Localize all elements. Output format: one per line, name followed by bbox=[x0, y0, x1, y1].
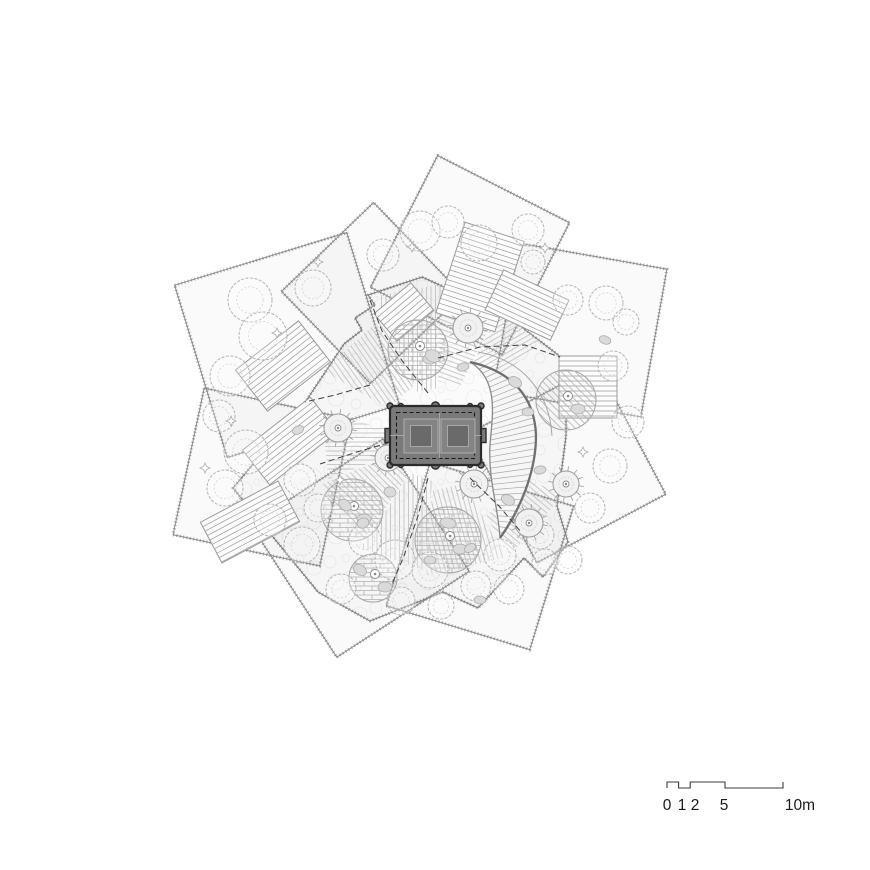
scale-label: 10m bbox=[785, 797, 815, 814]
tree-canopy bbox=[532, 549, 558, 575]
tree-canopy-outline bbox=[387, 587, 415, 615]
terrace-drain-dot bbox=[374, 573, 377, 576]
tree-canopy-outline bbox=[224, 430, 268, 474]
tree-canopy-outline bbox=[254, 504, 286, 536]
tree-canopy-outline bbox=[375, 540, 415, 580]
tree-canopy bbox=[304, 494, 332, 522]
tree-canopy bbox=[284, 527, 320, 563]
shrub-blob bbox=[424, 556, 436, 564]
tree-canopy-outline bbox=[494, 574, 524, 604]
tree-canopy-outline bbox=[553, 285, 583, 315]
scale-label: 5 bbox=[720, 797, 729, 814]
tree-canopy bbox=[239, 312, 287, 360]
tree-canopy bbox=[428, 593, 454, 619]
scale-label: 0 bbox=[663, 797, 672, 814]
tree-canopy bbox=[375, 540, 415, 580]
terrace-drain-dot bbox=[449, 535, 452, 538]
tree-canopy-outline bbox=[598, 351, 628, 381]
page: 012510m bbox=[0, 0, 870, 870]
terrace-shrub bbox=[571, 404, 585, 414]
tree-canopy bbox=[432, 206, 464, 238]
pavilion-roof-inner bbox=[448, 426, 469, 447]
tree-canopy-outline bbox=[326, 574, 356, 604]
tree-canopy-outline bbox=[284, 527, 320, 563]
shrub-blob bbox=[474, 596, 486, 604]
scale-bar: 012510m bbox=[663, 782, 815, 814]
shrub-blob bbox=[522, 408, 534, 416]
tree-canopy bbox=[224, 430, 268, 474]
tree-canopy-outline bbox=[349, 524, 381, 556]
tree-canopy bbox=[613, 309, 639, 335]
tree-canopy bbox=[461, 571, 491, 601]
tree-canopy bbox=[284, 464, 316, 496]
terrace-drain-dot bbox=[419, 345, 422, 348]
tree-canopy bbox=[461, 225, 497, 261]
tree-canopy-outline bbox=[613, 309, 639, 335]
terrace-drain-dot bbox=[353, 505, 356, 508]
tree-canopy bbox=[295, 270, 331, 306]
tree-canopy bbox=[349, 524, 381, 556]
tree-canopy-outline bbox=[239, 312, 287, 360]
planter-trunk-dot bbox=[565, 483, 567, 485]
tree-canopy-outline bbox=[484, 539, 516, 571]
terrace bbox=[536, 370, 596, 430]
tree-canopy-outline bbox=[512, 214, 544, 246]
tree-canopy-outline bbox=[532, 549, 558, 575]
planter-trunk-dot bbox=[528, 522, 530, 524]
tree-canopy-outline bbox=[612, 406, 644, 438]
tree-canopy-outline bbox=[432, 206, 464, 238]
planter-trunk-dot bbox=[387, 457, 389, 459]
tree-canopy bbox=[521, 250, 545, 274]
scale-bar-line bbox=[667, 782, 783, 788]
tree-canopy bbox=[367, 239, 399, 271]
pavilion bbox=[385, 402, 486, 469]
tree-canopy-outline bbox=[284, 464, 316, 496]
tree-canopy bbox=[553, 285, 583, 315]
terrace-shrub bbox=[378, 582, 392, 592]
tree-canopy-outline bbox=[461, 571, 491, 601]
tree-canopy bbox=[612, 406, 644, 438]
tree-canopy-outline bbox=[593, 449, 627, 483]
terrace-drain-dot bbox=[567, 395, 570, 398]
tree-canopy-outline bbox=[203, 400, 235, 432]
tree-canopy-outline bbox=[367, 239, 399, 271]
tree-canopy-outline bbox=[207, 470, 243, 506]
tree-canopy bbox=[598, 351, 628, 381]
tree-canopy bbox=[203, 400, 235, 432]
tree-canopy-outline bbox=[461, 225, 497, 261]
tree-canopy-outline bbox=[304, 494, 332, 522]
terrace bbox=[388, 320, 448, 380]
site-plan-drawing: 012510m bbox=[0, 0, 870, 870]
tree-canopy bbox=[387, 587, 415, 615]
planter-trunk-dot bbox=[473, 483, 475, 485]
tree-canopy-outline bbox=[575, 493, 605, 523]
tree-canopy bbox=[494, 574, 524, 604]
tree-canopy-outline bbox=[428, 593, 454, 619]
scale-label: 1 bbox=[678, 797, 687, 814]
tree-canopy bbox=[484, 539, 516, 571]
planter-trunk-dot bbox=[337, 427, 339, 429]
tree-canopy bbox=[593, 449, 627, 483]
scale-label: 2 bbox=[691, 797, 700, 814]
planter-trunk-dot bbox=[467, 327, 469, 329]
tree-canopy-outline bbox=[210, 356, 250, 396]
tree-canopy-outline bbox=[521, 250, 545, 274]
tree-canopy-outline bbox=[295, 270, 331, 306]
tree-canopy bbox=[575, 493, 605, 523]
tree-canopy bbox=[207, 470, 243, 506]
tree-canopy bbox=[326, 574, 356, 604]
pavilion-roof-inner bbox=[411, 426, 432, 447]
tree-canopy bbox=[210, 356, 250, 396]
tree-canopy bbox=[254, 504, 286, 536]
tree-canopy bbox=[512, 214, 544, 246]
